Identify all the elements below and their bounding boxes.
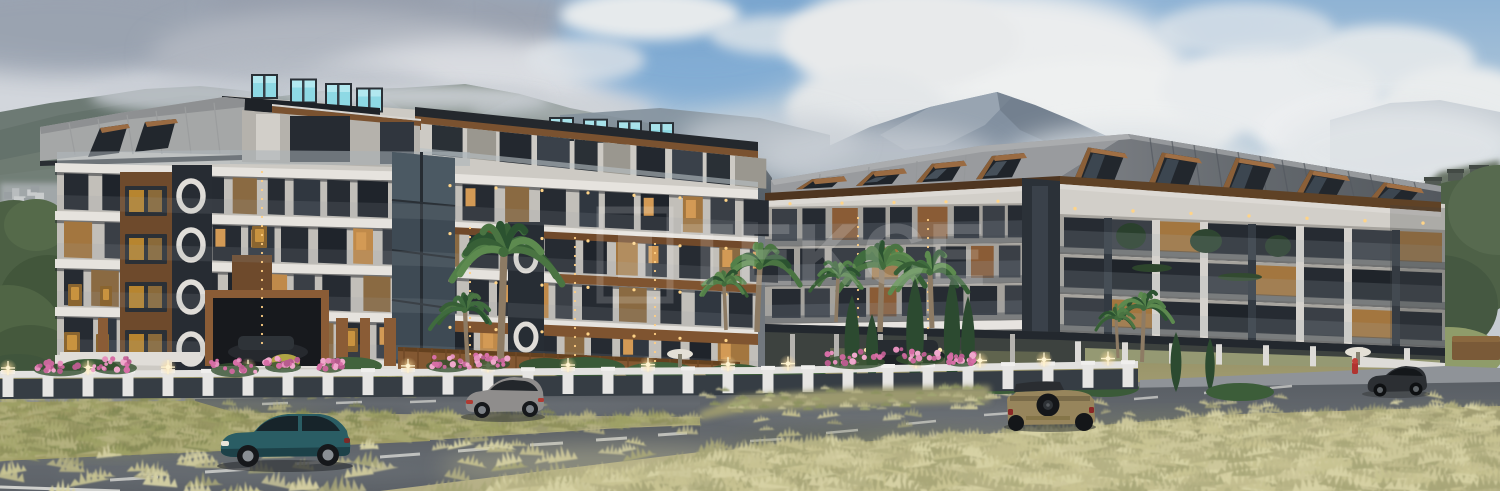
svg-text:TEKCE: TEKCE [680,205,988,304]
